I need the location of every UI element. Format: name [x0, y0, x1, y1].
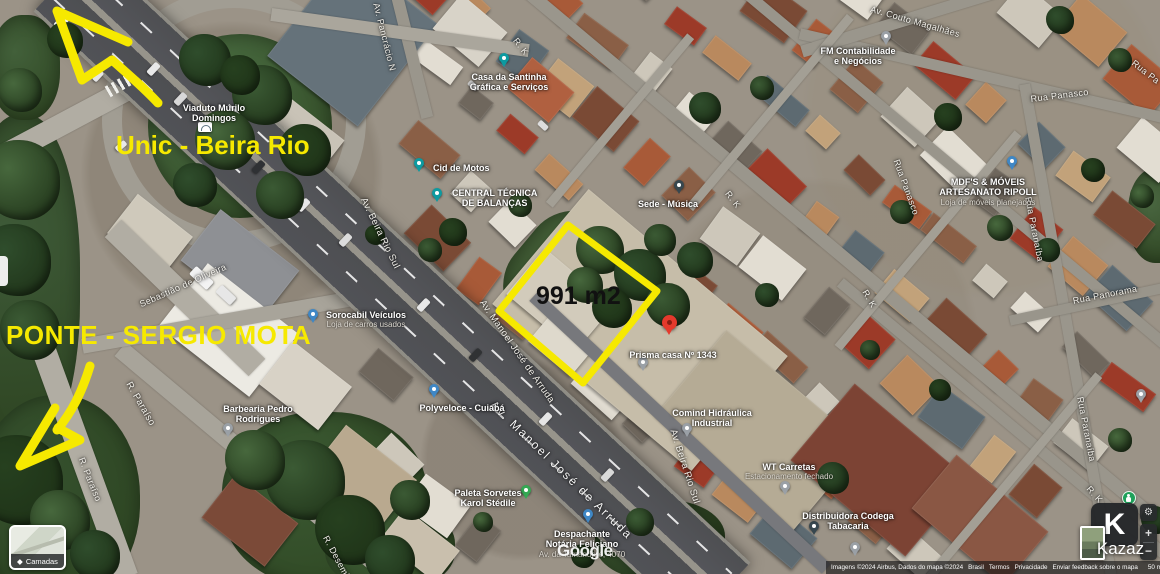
street-label: R. Paraíso [77, 456, 104, 503]
poi-sub-line: Loja de móveis planejados [939, 198, 1036, 207]
attribution-link[interactable]: Termos [989, 564, 1010, 571]
map-settings-button[interactable]: ⚙ [1140, 504, 1157, 521]
poi-pin-wt-carretas[interactable] [780, 481, 790, 491]
poi-name-line: Sede - Música [638, 199, 698, 209]
poi-sub-line: Estacionamento fechado [745, 472, 833, 481]
poi-name-line: Polyveloce - Cuiabá [419, 403, 504, 413]
poi-pin-poi-sem-rotulo-1[interactable] [850, 542, 860, 552]
street-label: Rua Paranaíba [1075, 396, 1097, 462]
street-label: Av. Manoel José de Arruda [487, 398, 636, 542]
street-label: Rua Panorama [1072, 284, 1138, 306]
layers-control[interactable]: ◆ Camadas [9, 525, 66, 570]
poi-pin-polyveloce-cuiaba[interactable] [429, 384, 439, 394]
poi-name-line: Distribuidora Codega [802, 511, 894, 521]
attribution-link[interactable]: Privacidade [1015, 564, 1048, 571]
attribution-bar: Imagens ©2024 Airbus, Dados do mapa ©202… [826, 561, 1160, 574]
attribution-link[interactable]: Enviar feedback sobre o mapa [1052, 564, 1137, 571]
attribution-links: BrasilTermosPrivacidadeEnviar feedback s… [968, 564, 1143, 571]
poi-pin-despachante-feliciano[interactable] [583, 509, 593, 519]
street-label: Rua Panasco [1030, 87, 1089, 104]
scale-label: 50 m [1148, 564, 1160, 571]
poi-name-line: ARTESANATO RIPOLL [939, 187, 1036, 197]
poi-label-fm-contabilidade[interactable]: FM Contabilidadee Negócios [821, 46, 896, 67]
poi-name-line: Industrial [672, 418, 752, 428]
poi-label-central-tecnica-balancas[interactable]: CENTRAL TÉCNICADE BALANÇAS [452, 188, 537, 209]
poi-pin-central-tecnica-balancas[interactable] [432, 188, 442, 198]
street-label: Rua Pa [1130, 58, 1160, 86]
annotation-label-unic-beira-rio: Unic - Beira Rio [116, 130, 310, 161]
poi-name-line: Gráfica e Serviços [470, 82, 549, 92]
street-label: R. K [511, 36, 531, 57]
street-label: Av. Beira Rio Sul [358, 196, 402, 271]
kazaz-watermark-text: Kazaz [1093, 539, 1148, 559]
poi-name-line: Karol Stédile [454, 498, 521, 508]
street-label: R. K [1085, 484, 1105, 505]
poi-label-viaduto-murilo-domingos[interactable]: Viaduto MuriloDomingos [183, 103, 245, 124]
street-label: Av. Pancrácio N [371, 2, 398, 72]
poi-name-line: Viaduto Murilo [183, 103, 245, 113]
layers-icon: ◆ [17, 557, 23, 566]
street-label: R. K [860, 288, 878, 310]
poi-label-mdfs-moveis[interactable]: MDF'S & MÓVEISARTESANATO RIPOLLLoja de m… [939, 177, 1036, 207]
edge-label-fragment [0, 256, 8, 286]
street-label: Sebastião de Oliveira [138, 262, 228, 309]
street-label: R. K [723, 189, 743, 210]
street-label: R. Paraíso [123, 380, 157, 428]
poi-label-grafica-santinha[interactable]: Casa da SantinhaGráfica e Serviços [470, 72, 549, 93]
layers-strip: ◆ Camadas [11, 554, 64, 568]
poi-name-line: Comind Hidráulica [672, 408, 752, 418]
annotation-label-ponte-sergio-mota: PONTE - SERGIO MOTA [6, 320, 311, 351]
poi-name-line: CENTRAL TÉCNICA [452, 188, 537, 198]
poi-sub-line: Loja de carros usados [326, 320, 406, 329]
street-label: R. Desembargador [321, 534, 369, 574]
poi-label-distribuidora-codega[interactable]: Distribuidora CodegaTabacaria [802, 511, 894, 532]
street-label: Av. Beira Rio Sul [668, 428, 702, 505]
poi-label-sorocabil-veiculos[interactable]: Sorocabil VeículosLoja de carros usados [326, 310, 406, 330]
poi-name-line: FM Contabilidade [821, 46, 896, 56]
poi-name-line: Casa da Santinha [470, 72, 549, 82]
layers-label: Camadas [26, 557, 58, 566]
red-map-marker[interactable] [662, 315, 677, 330]
lot-area-label: 991 m2 [536, 282, 621, 311]
map-canvas[interactable]: Av. Couto MagalhãesAv. Pancrácio NR. KR.… [0, 0, 1160, 574]
google-watermark: Google [557, 541, 613, 561]
poi-name-line: DE BALANÇAS [452, 198, 537, 208]
poi-name-line: e Negócios [821, 56, 896, 66]
poi-label-polyveloce-cuiaba[interactable]: Polyveloce - Cuiabá [419, 403, 504, 413]
street-label: Rua Panasco [892, 158, 921, 216]
poi-pin-cid-de-motos[interactable] [414, 158, 424, 168]
poi-pin-fm-contabilidade[interactable] [881, 31, 891, 41]
poi-name-line: Prisma casa Nº 1343 [629, 350, 716, 360]
poi-label-wt-carretas[interactable]: WT CarretasEstacionamento fechado [745, 462, 833, 482]
poi-pin-grafica-santinha[interactable] [499, 53, 509, 63]
poi-pin-paleta-sorvetes[interactable] [521, 485, 531, 495]
attribution-link[interactable]: Brasil [968, 564, 984, 571]
kazaz-logo-letter: K [1104, 508, 1126, 542]
poi-name-line: Tabacaria [802, 521, 894, 531]
poi-name-line: Sorocabil Veículos [326, 310, 406, 320]
gear-icon: ⚙ [1144, 507, 1153, 518]
poi-label-cid-de-motos[interactable]: Cid de Motos [433, 163, 490, 173]
poi-name-line: Rodrigues [223, 414, 293, 424]
poi-label-paleta-sorvetes[interactable]: Paleta SorvetesKarol Stédile [454, 488, 521, 509]
poi-pin-poi-sem-rotulo-2[interactable] [1136, 389, 1146, 399]
poi-pin-sede-musica[interactable] [674, 180, 684, 190]
poi-pin-mdfs-moveis[interactable] [1007, 156, 1017, 166]
poi-label-barbearia-pedro-rodrigues[interactable]: Barbearia PedroRodrigues [223, 404, 293, 425]
poi-name-line: Cid de Motos [433, 163, 490, 173]
poi-label-comind-hidraulica[interactable]: Comind HidráulicaIndustrial [672, 408, 752, 429]
poi-name-line: Despachante [539, 529, 625, 539]
poi-label-prisma-casa-1343[interactable]: Prisma casa Nº 1343 [629, 350, 716, 360]
poi-name-line: Barbearia Pedro [223, 404, 293, 414]
poi-name-line: Domingos [183, 113, 245, 123]
poi-name-line: Paleta Sorvetes [454, 488, 521, 498]
poi-name-line: MDF'S & MÓVEIS [939, 177, 1036, 187]
poi-name-line: WT Carretas [745, 462, 833, 472]
imagery-credit: Imagens ©2024 Airbus, Dados do mapa ©202… [831, 564, 963, 571]
poi-pin-sorocabil-veiculos[interactable] [308, 309, 318, 319]
street-label: Av. Manoel José de Arruda [477, 298, 557, 405]
poi-label-sede-musica[interactable]: Sede - Música [638, 199, 698, 209]
